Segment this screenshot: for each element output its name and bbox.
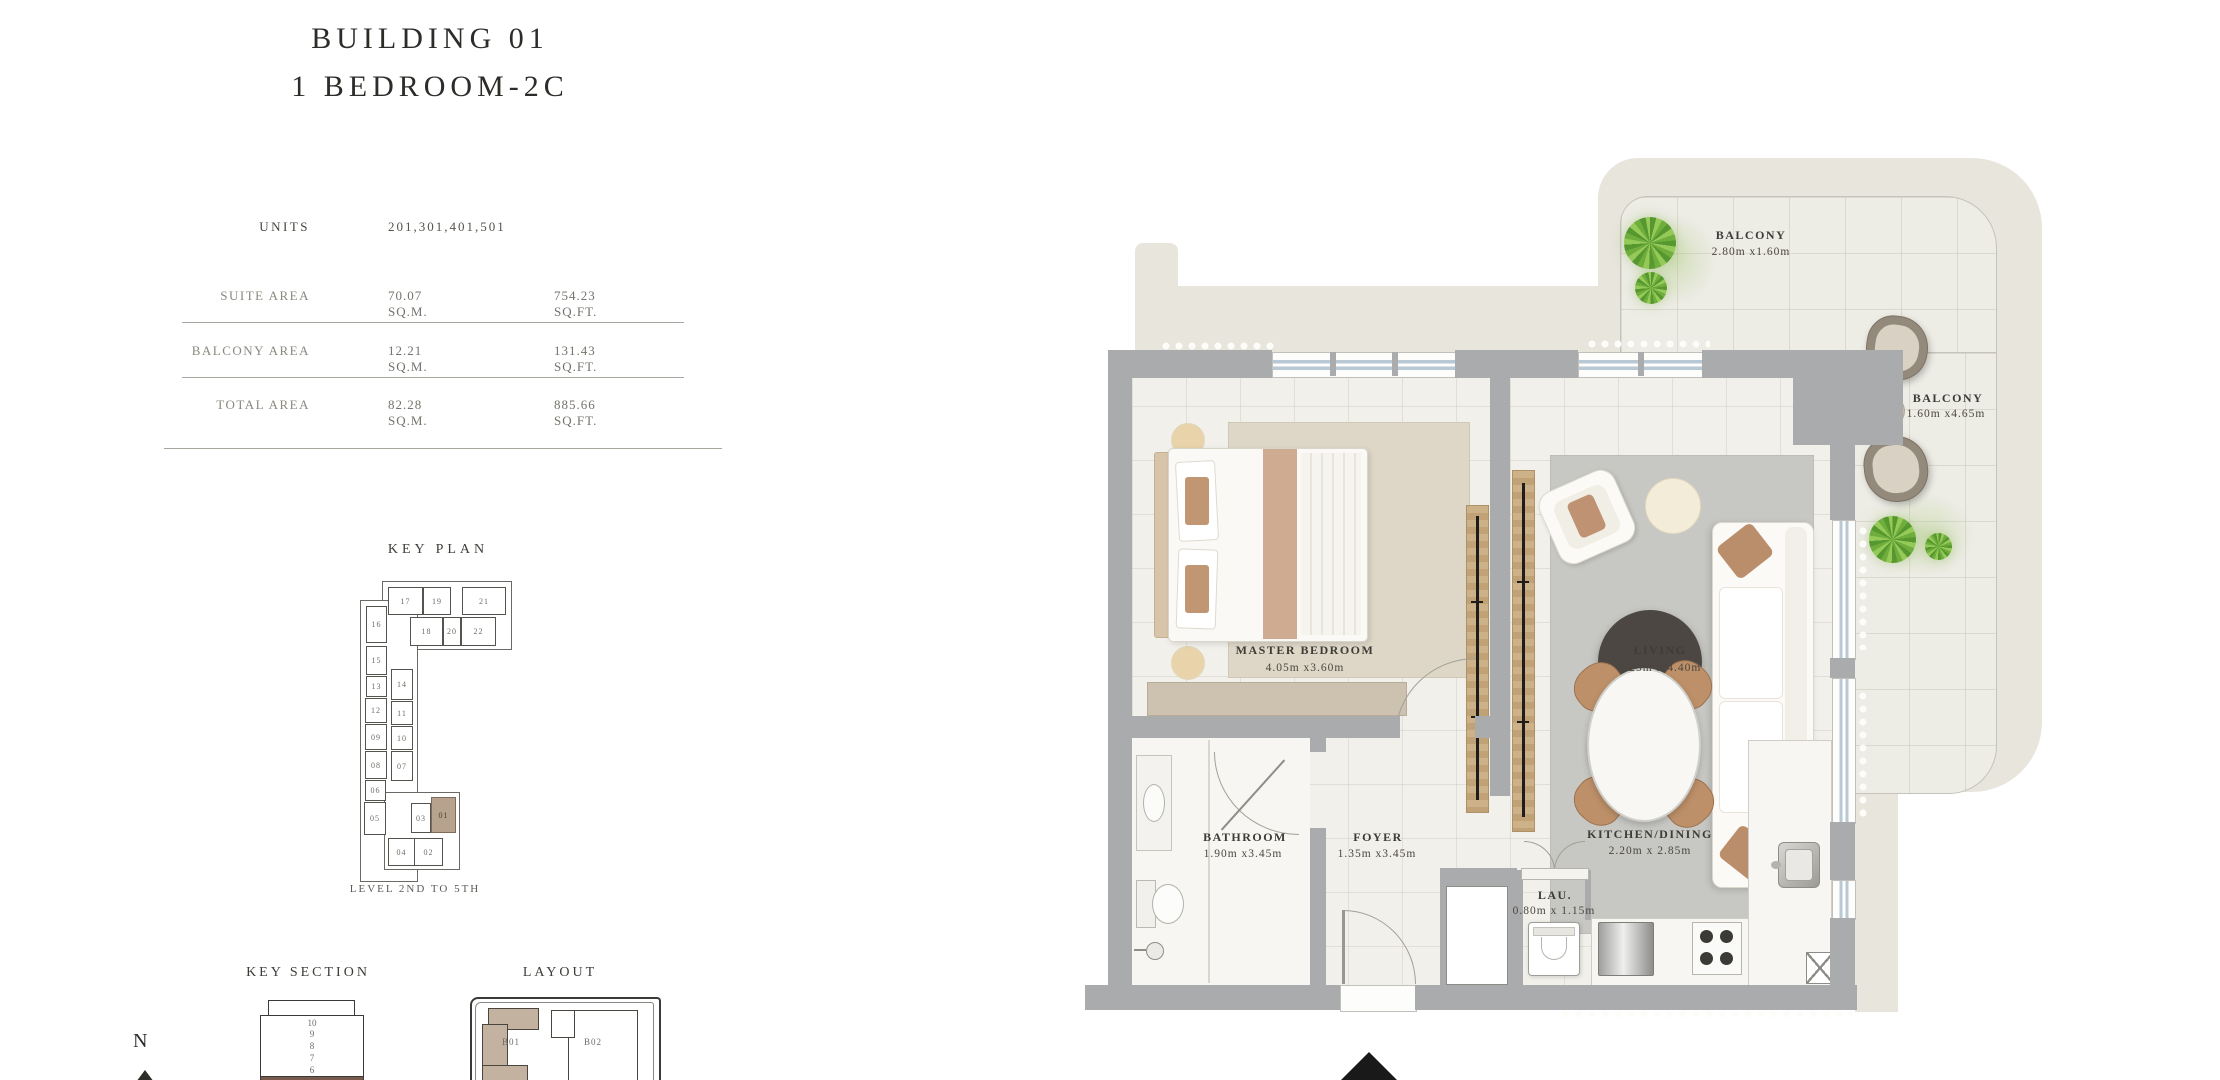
shaft-void [1446,886,1508,985]
key-plan-unit: 13 [366,676,387,697]
hedge [1160,340,1276,353]
wall [1830,822,1855,880]
page-title-line1: BUILDING 01 [311,22,548,56]
window-mullion [1392,352,1398,376]
duvet-runner [1263,449,1297,639]
floorplan-brochure-page: BUILDING 01 1 BEDROOM-2C UNITS 201,301,4… [0,0,2220,1080]
key-plan-unit: 07 [391,751,413,781]
wall [1415,985,1857,1010]
duvet-folds [1301,453,1361,635]
page-title-line2: 1 BEDROOM-2C [291,70,569,104]
sofa-cushion [1719,587,1783,699]
wardrobe-rail [1522,483,1525,817]
window [1832,880,1856,920]
wall-bedroom-south [1132,716,1400,738]
hedge [1857,525,1869,650]
entry-door-leaf [1342,910,1345,984]
balcony-glass-door [1832,520,1856,660]
wardrobe-hanger [1517,721,1529,723]
room-label: BALCONY [1716,228,1787,243]
room-label: MASTER BEDROOM [1236,643,1375,658]
shower-arm [1134,949,1146,951]
wall-bedroom-south [1475,716,1510,738]
burner [1700,930,1713,943]
units-label: UNITS [150,219,310,235]
wall-bedroom-living [1490,350,1510,716]
divider [182,322,684,323]
window [1272,352,1457,378]
key-plan-unit: 06 [365,780,386,801]
key-section-highlighted-floors [260,1076,364,1080]
row-sqft: 885.66 SQ.FT. [554,397,597,429]
room-label: KITCHEN/DINING [1587,827,1713,842]
wall [1702,350,1797,378]
layout-building-label: B01 [502,1037,520,1047]
room-dims: 4.05m x3.60m [1266,662,1345,674]
key-plan-unit: 02 [414,838,443,866]
wall [1085,985,1340,1010]
window-mullion [1330,352,1336,376]
entry-threshold [1340,985,1417,1012]
wall [1108,350,1132,1010]
room-label: LIVING [1633,643,1686,658]
balcony-glass-door [1832,678,1856,824]
wall [1455,350,1578,378]
layout-title: LAYOUT [523,965,597,981]
row-label: TOTAL AREA [150,397,310,413]
wall [1830,658,1855,678]
divider [182,377,684,378]
plant [1624,217,1676,269]
key-plan-unit: 17 [388,587,423,615]
room-label: BATHROOM [1203,830,1287,845]
refrigerator [1598,922,1654,976]
bed [1168,448,1368,642]
row-sqm: 82.28 SQ.M. [388,397,428,429]
nightstand [1171,646,1205,680]
compass-north-label: N [133,1030,147,1053]
burner [1720,930,1733,943]
units-value: 201,301,401,501 [388,219,506,235]
divider-bottom [164,448,722,449]
room-dims: 2.80m x1.60m [1712,246,1791,258]
key-plan-unit: 21 [462,587,506,615]
room-label: FOYER [1353,830,1403,845]
laundry-wall [1517,870,1523,985]
washing-machine [1528,922,1580,976]
layout-building-b01-shape [482,1065,528,1080]
accent-pillow [1715,522,1774,581]
wardrobe-rail [1476,516,1479,800]
key-plan-level-label: LEVEL 2ND TO 5TH [350,883,480,895]
shower-drain [1146,942,1164,960]
row-sqm: 70.07 SQ.M. [388,288,428,320]
layout-boundary: B01 B02 [470,997,661,1080]
key-plan-unit: 18 [410,617,443,646]
washer-panel [1533,927,1575,936]
burner [1700,952,1713,965]
key-plan-unit: 20 [443,617,461,646]
wall [1830,445,1855,520]
plant [1925,533,1952,560]
wardrobe [1512,470,1535,832]
hedge [1560,1008,1852,1021]
key-plan-unit: 16 [366,606,387,643]
room-dims: 1.90m x3.45m [1204,848,1283,860]
key-plan-title: KEY PLAN [388,542,488,558]
key-plan-unit: 09 [365,724,387,750]
wall-bathroom [1310,738,1326,752]
row-sqft: 131.43 SQ.FT. [554,343,597,375]
key-plan-unit: 04 [388,838,415,866]
key-plan-unit: 08 [365,751,387,779]
layout-building-b02-shape [568,1010,638,1080]
key-plan-unit: 03 [411,803,431,833]
sink-bowl [1143,784,1165,822]
accent-pillow [1185,477,1209,525]
room-dims: 0.80m x 1.15m [1513,905,1596,917]
row-label: BALCONY AREA [150,343,310,359]
key-plan-unit: 05 [364,802,386,835]
row-label: SUITE AREA [150,288,310,304]
bathroom-vanity [1136,755,1172,851]
key-plan-unit-highlighted: 01 [431,797,456,833]
wall-pier-block [1793,350,1903,445]
accent-pillow [1185,565,1209,613]
key-section-title: KEY SECTION [246,965,370,981]
compass-arrow-icon [136,1070,154,1080]
key-plan-unit: 11 [391,701,413,725]
toilet-bowl [1152,884,1184,924]
plant [1635,272,1667,304]
room-dims: 2.20m x 2.85m [1609,845,1692,857]
dining-table [1587,668,1701,822]
key-plan-unit: 15 [366,646,387,675]
key-plan-unit: 10 [391,726,413,750]
wall [1132,350,1272,378]
burner [1720,952,1733,965]
room-label: LAU. [1538,888,1572,903]
wardrobe-hanger [1517,581,1529,583]
key-plan-unit: 19 [423,587,451,615]
wardrobe-hanger [1471,601,1483,603]
room-dims: 4.25m x 4.40m [1619,662,1702,674]
key-plan-unit: 22 [461,617,496,646]
hedge [1857,690,1869,818]
sink-basin [1785,849,1813,881]
key-plan-unit: 14 [391,669,413,700]
wall-bathroom [1310,828,1326,985]
bottom-triangle-mark [1339,1052,1399,1080]
faucet [1771,861,1781,869]
dresser [1147,682,1407,716]
row-sqft: 754.23 SQ.FT. [554,288,597,320]
side-table [1645,478,1701,534]
wall [1830,918,1855,1010]
hedge [1586,338,1710,351]
room-dims: 1.35m x3.45m [1338,848,1417,860]
washer-door [1541,937,1567,960]
stove [1692,922,1742,975]
plant [1869,516,1916,563]
laundry-threshold [1521,868,1589,880]
layout-building-b02-shape [551,1010,575,1038]
shower-partition-line [1208,740,1210,983]
layout-building-label: B02 [584,1037,602,1047]
key-plan-unit: 12 [365,698,387,723]
window-mullion [1638,352,1644,376]
row-sqm: 12.21 SQ.M. [388,343,428,375]
room-label: BALCONY [1913,391,1984,406]
room-dims: 1.60m x4.65m [1907,408,1986,420]
kitchen-sink [1778,842,1820,888]
